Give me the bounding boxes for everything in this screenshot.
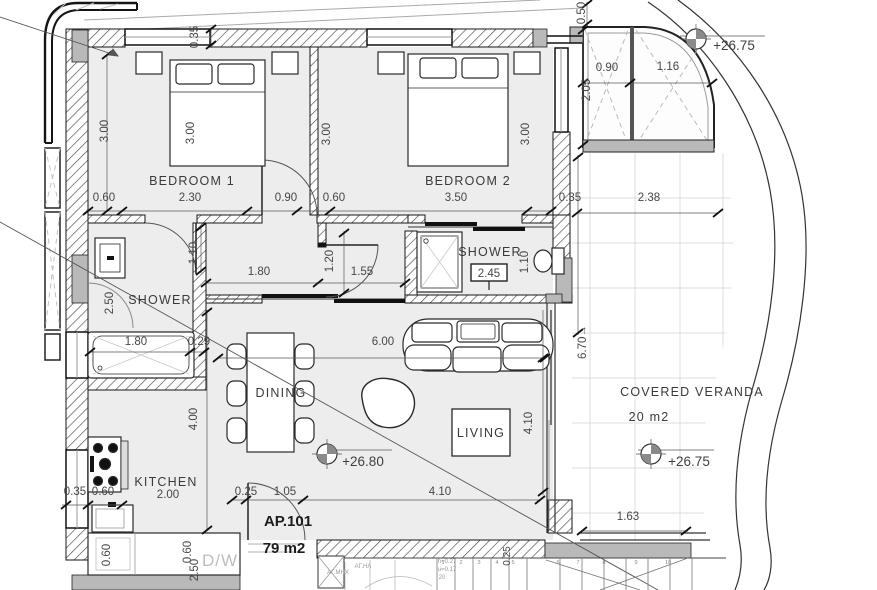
dim-shower1-door: 1.10 [188,242,200,264]
level-marker-veranda [636,439,666,469]
dim-bedroom1-bed: 3.00 [185,122,197,144]
dim-entry-b: 1.05 [274,486,296,498]
room-label-veranda: COVERED VERANDA [620,385,764,399]
dim-kitchen-e: 2.50 [189,559,201,581]
veranda-area: 20 m2 [629,410,670,424]
dim-shower2-height: 2.45 [478,268,500,280]
stair-step: 9 [634,560,637,566]
shower1-basin [95,238,125,278]
stove [88,437,128,492]
dim-bedroom2-width: 3.50 [445,192,467,204]
coffee-table [362,378,415,427]
apartment-id: AP.101 [264,513,312,530]
level-living-value: +26.80 [342,454,384,469]
dim-hall-width: 1.20 [324,250,336,272]
stair-step: 8 [602,560,605,566]
stair-step: 2 [459,560,462,566]
dim-bedroom1-offset: 0.60 [93,192,115,204]
dim-living-width: 6.00 [372,336,394,348]
dim-top-wall: 0.35 [189,26,201,48]
dim-kitchen-c: 0.60 [101,544,113,566]
stair-step: 3 [477,560,480,566]
dim-shower1-tub: 1.80 [125,336,147,348]
floor-plan-page: BEDROOM 1 2.30 0.60 0.90 3.00 3.00 0.35 … [0,0,877,590]
dim-bedroom1-depth: 3.00 [99,120,111,142]
sofa [403,319,553,372]
shaft-label-1: ΑΓ.ΜΗΧ [327,570,349,576]
stair-note-n: 20 [439,575,446,581]
room-label-shower1: SHOWER [128,293,191,307]
stair-step: 10 [665,560,671,566]
veranda-tiles [572,153,740,540]
dim-glazed-top: 0.50 [576,2,588,24]
dim-hall-seg1: 1.80 [248,266,270,278]
dim-bedroom2-wall: 0.35 [559,192,581,204]
dim-bedroom1-door: 0.90 [275,192,297,204]
room-label-shower2: SHOWER [458,245,521,259]
room-label-bedroom1: BEDROOM 1 [149,174,235,188]
label-dishwasher: D/W [202,551,238,570]
dim-entry-a: 0.25 [235,486,257,498]
dim-bedroom2-bed: 3.00 [520,123,532,145]
dim-kitchen-width: 2.00 [157,489,179,501]
dim-hall-seg2: 1.55 [351,266,373,278]
stair-step: 7 [576,560,579,566]
dim-kitchen-a: 0.35 [64,486,86,498]
dim-shower1-ledge: 0.29 [188,336,210,348]
roof-eave-lines [84,0,583,32]
stair-step: 6 [556,560,559,566]
room-label-kitchen: KITCHEN [134,475,197,489]
veranda-south-edge [580,533,710,540]
dim-veranda-width: 2.38 [638,192,660,204]
dim-veranda-south: 1.63 [617,511,639,523]
level-veranda-value: +26.75 [668,454,710,469]
dim-bedroom2-offset: 0.60 [323,192,345,204]
apartment-area: 79 m2 [263,540,306,557]
room-label-living: LIVING [457,426,505,440]
shower2-tray [417,232,462,292]
level-top-value: +26.75 [713,38,755,53]
dim-glazed-b: 1.16 [657,61,679,73]
stair-step: 4 [495,560,498,566]
stair-note-u: u=0.17 [438,567,457,573]
shaft-label-2: ΑΓ.ΗΛ [355,564,372,570]
dim-glazed-a: 0.90 [596,62,618,74]
room-label-dining: DINING [256,386,307,400]
stair-step: 5 [511,560,514,566]
dim-glazed-height: 2.05 [581,79,593,101]
stair-note-h: h=0.27 [438,559,457,565]
dim-bedroom1-width: 2.30 [179,192,201,204]
dim-shower2-fixture: 1.10 [519,251,531,273]
kitchen-sink [92,502,133,532]
dim-entry-c: 4.10 [429,486,451,498]
room-label-bedroom2: BEDROOM 2 [425,174,511,188]
dim-living-depth: 4.10 [523,412,535,434]
dim-veranda-length: 6.70→ [577,325,589,359]
dim-bedroom2-depth: 3.00 [321,123,333,145]
dim-kitchen-depth: 4.00 [188,408,200,430]
dim-kitchen-b: 0.60 [92,486,114,498]
dim-shower1-depth: 2.50 [104,292,116,314]
floor-plan-svg: BEDROOM 1 2.30 0.60 0.90 3.00 3.00 0.35 … [0,0,877,590]
